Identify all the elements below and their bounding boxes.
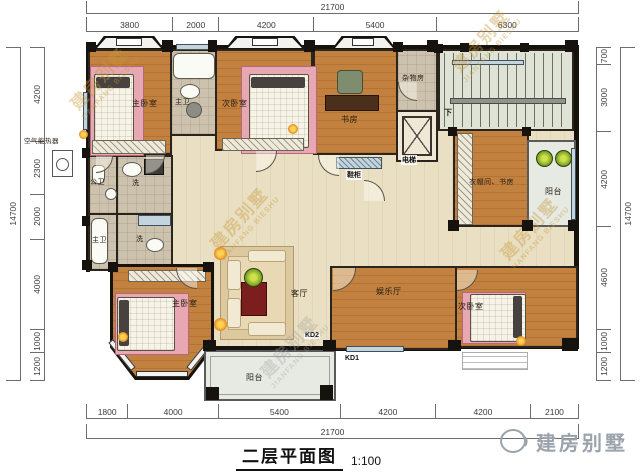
lamp-icon (214, 247, 227, 260)
dim-value: 6300 (436, 17, 578, 31)
wall-pier (522, 220, 533, 231)
balcony-post (320, 385, 333, 400)
dim-value: 5400 (218, 404, 340, 418)
wall-pier (448, 340, 461, 351)
dim-value: 3800 (87, 17, 172, 31)
wall-pier (460, 43, 469, 52)
pillow (251, 77, 305, 88)
dim-left-overall: 14700 (6, 47, 21, 381)
dim-value: 2100 (530, 404, 578, 418)
label-kd1: KD1 (344, 355, 360, 362)
label-entertainment-hall: 娱乐厅 (376, 286, 402, 297)
wall-pier (82, 216, 90, 226)
wall-pier (522, 127, 531, 136)
wall-pier (448, 127, 457, 136)
wardrobe-hatch (222, 138, 304, 151)
sofa-icon (248, 250, 286, 262)
coffee-table-icon (241, 282, 267, 316)
lamp-icon (516, 336, 526, 346)
bay-top-1-window (116, 38, 142, 46)
dim-value: 3000 (597, 64, 611, 132)
chair-icon (337, 70, 363, 94)
sink-icon (146, 238, 164, 252)
bay-window-bottom (136, 371, 188, 377)
dim-value: 4200 (597, 131, 611, 225)
lamp-icon (214, 318, 227, 331)
heater-unit-icon (56, 158, 69, 171)
plant-icon (536, 150, 553, 167)
label-balcony-right: 阳台 (545, 186, 562, 197)
wall-pier (162, 40, 173, 52)
dim-value: 4200 (340, 404, 435, 418)
wall-pier (565, 40, 578, 52)
pillow (513, 296, 522, 338)
dim-value: 1200 (30, 352, 44, 380)
dim-value: 4200 (435, 404, 530, 418)
dim-value: 4200 (30, 48, 44, 141)
dim-value: 21700 (87, 1, 578, 13)
wall-pier (208, 40, 217, 52)
exterior-gap (86, 270, 112, 382)
dim-right-overall: 14700 (620, 47, 635, 381)
dim-right-segments: 70030004200460010001200 (596, 47, 611, 381)
lamp-icon (288, 124, 298, 134)
bathtub-icon (173, 53, 215, 79)
dim-value: 1000 (597, 329, 611, 352)
site-logo: 建房别墅 (498, 426, 628, 456)
wall-pier (86, 42, 96, 52)
shoe-cabinet-icon (336, 157, 382, 169)
lamp-icon (118, 332, 128, 342)
dim-value: 1200 (597, 352, 611, 380)
label-laundry-bottom: 洗 (136, 234, 144, 244)
wall-pier (448, 220, 459, 231)
entertainment-window-bottom (346, 346, 404, 352)
label-master-bedroom-top: 主卧室 (132, 98, 158, 109)
wall-pier (108, 262, 118, 272)
dim-left-segments: 420023002000400010001200 (30, 47, 45, 381)
logo-text: 建房别墅 (536, 427, 628, 456)
label-second-bedroom-bottom: 次卧室 (458, 301, 484, 312)
label-heater: 空气能热器 (24, 135, 59, 145)
dim-value: 14700 (621, 48, 635, 380)
desk-icon (325, 95, 379, 111)
wall-pier (520, 43, 529, 52)
bedroom-window-left (83, 92, 88, 130)
drawing-title: 二层平面图 1:100 (236, 442, 381, 471)
dim-bottom-segments: 180040005400420042002100 (86, 404, 579, 419)
balcony-post (206, 387, 219, 400)
label-laundry-top: 洗 (132, 178, 140, 188)
dim-value: 4000 (127, 404, 218, 418)
wardrobe-hatch (92, 140, 166, 154)
wall-pier (203, 262, 214, 272)
wall-pier (82, 260, 92, 270)
label-public-bath: 公卫 (90, 177, 105, 187)
pedestal-sink-icon (105, 188, 117, 200)
label-shoe-cabinet: 鞋柜 (346, 170, 362, 180)
wall-pier (304, 40, 315, 52)
logo-circle-icon (498, 426, 532, 456)
dim-value: 4000 (30, 239, 44, 329)
label-second-bedroom-top: 次卧室 (222, 98, 248, 109)
dim-value: 1000 (30, 329, 44, 352)
label-master-bath-top: 主卫 (175, 97, 190, 107)
wall-pier (568, 220, 578, 231)
label-kd2: KD2 (304, 332, 320, 339)
sofa-icon (227, 298, 241, 328)
label-cloakroom-study: 衣帽间、书房 (469, 177, 514, 187)
wall-pier (434, 44, 443, 53)
label-storage: 杂物房 (402, 73, 425, 83)
plant-icon (244, 268, 263, 287)
porch-steps (462, 352, 528, 370)
bath-window-top (176, 44, 212, 50)
plant-icon (555, 150, 572, 167)
title-scale: 1:100 (351, 454, 381, 471)
stair-handrail (450, 98, 566, 104)
title-text: 二层平面图 (236, 442, 343, 471)
wall-pier (562, 338, 578, 351)
dim-value: 4200 (218, 17, 313, 31)
label-stairs-down: 下 (444, 107, 453, 118)
elevator-car (402, 116, 432, 156)
stair-landing-window (452, 60, 524, 65)
bay-top-3-window (352, 38, 374, 46)
bay-top-2-window (252, 38, 278, 46)
floor-plan-canvas: 21700 38002000420054006300 1800400054004… (0, 0, 640, 473)
label-study: 书房 (341, 114, 358, 125)
dim-value: 2300 (30, 141, 44, 193)
balcony-inner-line (210, 356, 330, 395)
sofa-icon (227, 260, 241, 290)
dim-value: 2000 (172, 17, 218, 31)
pillow (96, 77, 130, 88)
wall-pier (203, 340, 216, 351)
label-master-bedroom-bottom: 主卧室 (172, 298, 198, 309)
dim-value: 2000 (30, 194, 44, 239)
label-master-bath-left: 主卫 (92, 235, 107, 245)
sofa-icon (248, 322, 286, 336)
wall-pier (393, 42, 403, 52)
laundry-counter (138, 215, 171, 226)
wall-pier (323, 340, 336, 351)
dim-top-overall: 21700 (86, 1, 579, 14)
dim-value: 14700 (6, 48, 20, 380)
dim-top-segments: 38002000420054006300 (86, 17, 579, 32)
dim-value: 1800 (87, 404, 127, 418)
dim-value: 700 (597, 48, 611, 64)
dim-value: 5400 (313, 17, 435, 31)
lamp-icon (79, 130, 88, 139)
label-living-room: 客厅 (291, 288, 308, 299)
wall-pier (82, 148, 90, 158)
label-elevator: 电梯 (401, 155, 417, 165)
label-balcony-bottom: 阳台 (246, 372, 263, 383)
sink-icon (122, 162, 142, 177)
dim-value: 4600 (597, 226, 611, 329)
